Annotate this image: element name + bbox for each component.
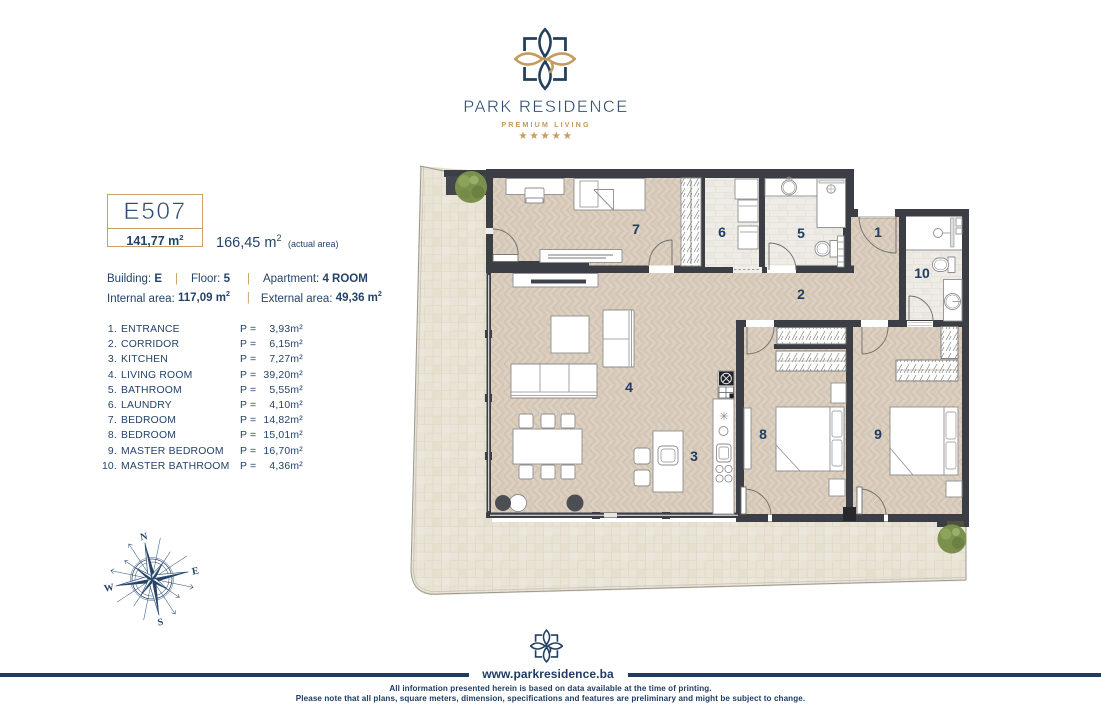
svg-text:S: S bbox=[157, 617, 165, 629]
svg-text:5: 5 bbox=[797, 225, 805, 241]
svg-text:9: 9 bbox=[874, 426, 882, 442]
svg-text:N: N bbox=[139, 531, 149, 543]
svg-text:4: 4 bbox=[625, 379, 633, 395]
svg-text:2: 2 bbox=[797, 286, 805, 302]
svg-text:3: 3 bbox=[690, 448, 698, 464]
svg-text:7: 7 bbox=[632, 221, 640, 237]
svg-text:6: 6 bbox=[718, 224, 726, 240]
svg-text:W: W bbox=[103, 582, 115, 595]
svg-text:1: 1 bbox=[874, 224, 882, 240]
svg-text:10: 10 bbox=[914, 265, 930, 281]
svg-text:E: E bbox=[191, 565, 200, 577]
svg-text:8: 8 bbox=[759, 426, 767, 442]
